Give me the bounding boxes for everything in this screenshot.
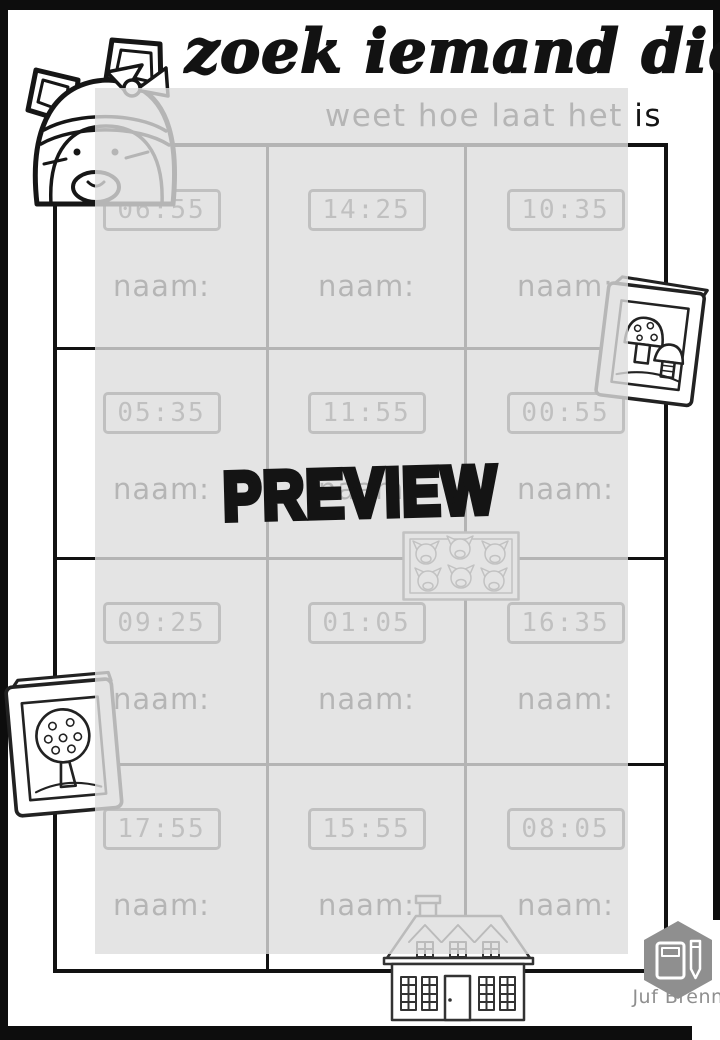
preview-watermark: PREVIEW bbox=[199, 450, 521, 537]
worksheet-preview-page: zoek iemand die weet hoe laat het is 06:… bbox=[0, 0, 720, 1040]
brand-name: Juf Brenn bbox=[620, 986, 720, 1008]
page-frame-right bbox=[713, 0, 720, 920]
page-frame-bottom bbox=[0, 1026, 692, 1040]
page-title: zoek iemand die bbox=[185, 16, 695, 88]
page-frame-left bbox=[0, 0, 8, 1040]
page-frame-top bbox=[0, 0, 720, 10]
